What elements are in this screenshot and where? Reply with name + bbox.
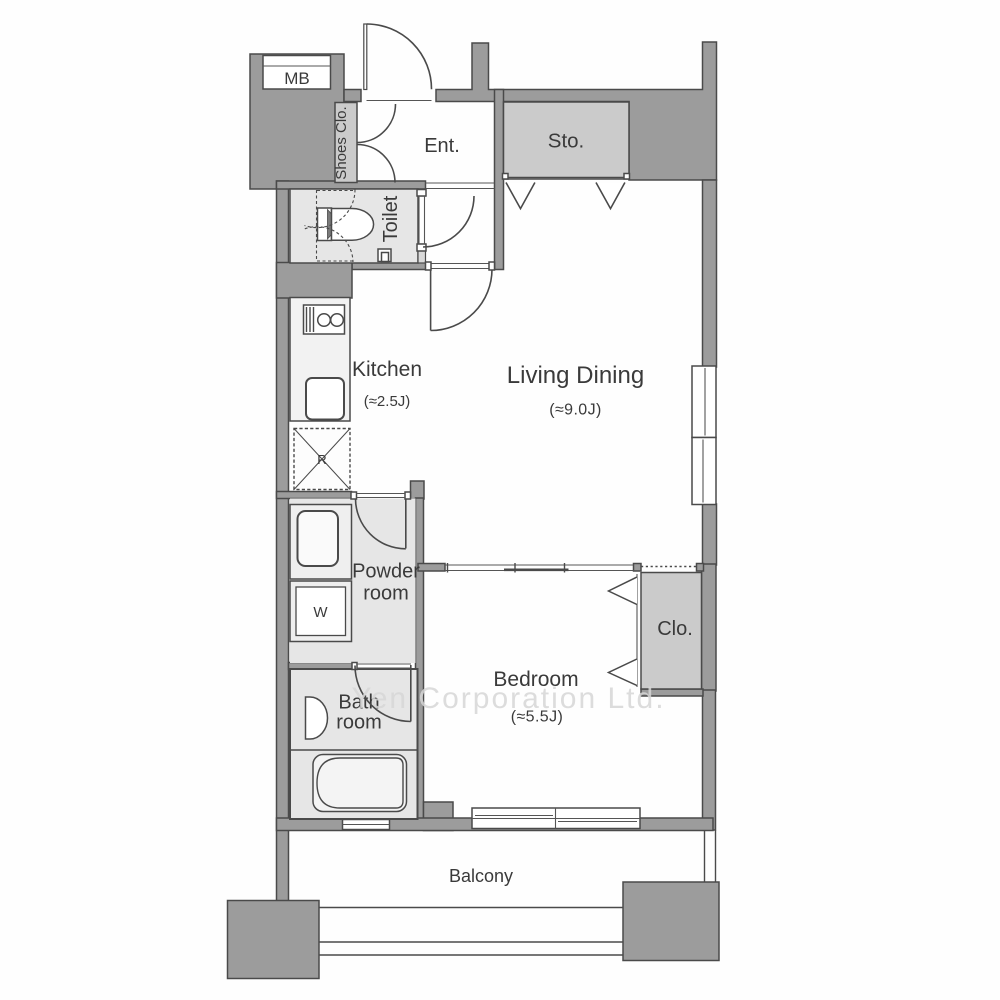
- svg-text:Shoes Clo.: Shoes Clo.: [333, 106, 350, 179]
- svg-text:Toilet: Toilet: [380, 195, 402, 242]
- svg-text:Yen Corporation Ltd.: Yen Corporation Ltd.: [351, 682, 665, 715]
- svg-text:Powder: Powder: [352, 561, 420, 583]
- svg-text:Clo.: Clo.: [657, 618, 693, 640]
- svg-text:MB: MB: [284, 69, 310, 88]
- svg-text:W: W: [313, 604, 328, 621]
- svg-text:Balcony: Balcony: [449, 866, 513, 886]
- svg-text:Sto.: Sto.: [548, 130, 584, 153]
- svg-text:R: R: [317, 452, 326, 467]
- svg-text:(≈2.5J): (≈2.5J): [364, 393, 411, 410]
- svg-text:Kitchen: Kitchen: [352, 358, 422, 381]
- svg-text:Ent.: Ent.: [424, 135, 460, 157]
- svg-text:room: room: [363, 583, 409, 605]
- svg-text:(≈9.0J): (≈9.0J): [549, 402, 601, 419]
- svg-text:Living Dining: Living Dining: [507, 362, 644, 389]
